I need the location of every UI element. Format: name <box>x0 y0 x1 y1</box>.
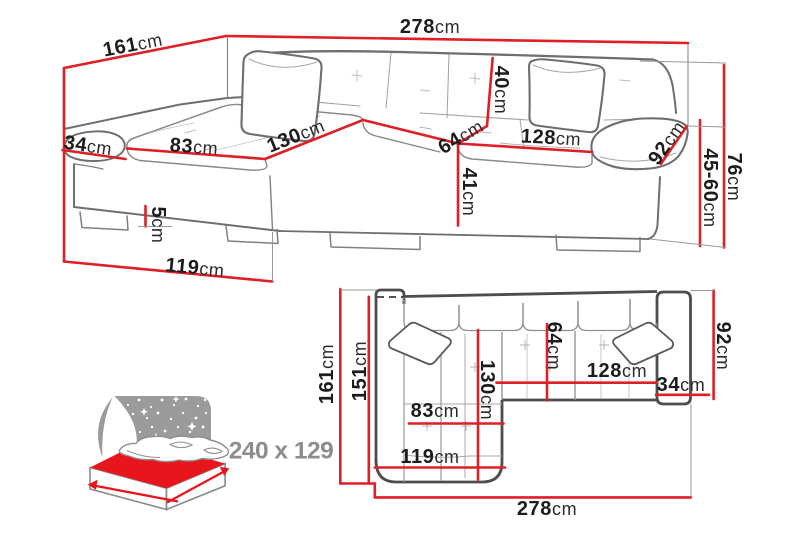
svg-text:128cm: 128cm <box>520 125 581 150</box>
svg-text:34cm: 34cm <box>657 374 706 396</box>
svg-text:41cm: 41cm <box>458 168 480 217</box>
svg-text:40cm: 40cm <box>490 66 512 115</box>
svg-text:151cm: 151cm <box>349 341 371 401</box>
svg-text:240 x 129: 240 x 129 <box>229 438 334 465</box>
svg-text:128cm: 128cm <box>587 360 647 382</box>
svg-text:76cm: 76cm <box>723 153 745 202</box>
svg-text:92cm: 92cm <box>712 322 734 371</box>
svg-text:45-60cm: 45-60cm <box>699 148 721 227</box>
svg-text:64cm: 64cm <box>543 322 565 371</box>
svg-text:278cm: 278cm <box>400 16 460 38</box>
svg-text:119cm: 119cm <box>400 446 459 468</box>
svg-text:83cm: 83cm <box>411 400 460 422</box>
svg-text:161cm: 161cm <box>316 344 338 404</box>
svg-text:130cm: 130cm <box>476 360 498 420</box>
svg-text:83cm: 83cm <box>169 134 219 159</box>
svg-text:5cm: 5cm <box>147 207 169 244</box>
svg-text:278cm: 278cm <box>517 498 577 520</box>
